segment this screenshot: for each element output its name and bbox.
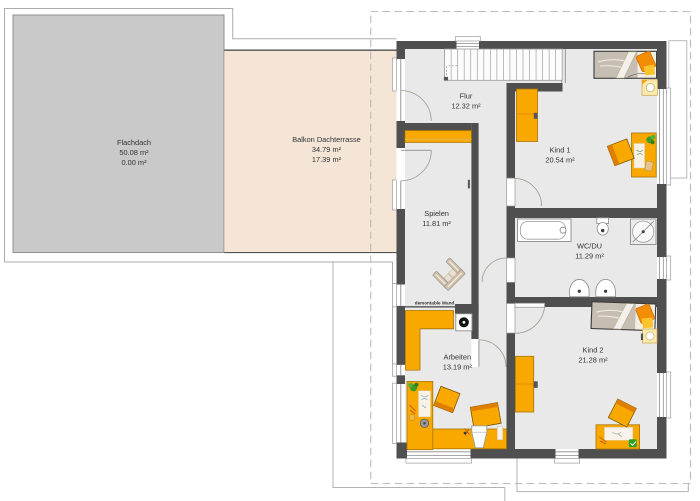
svg-text:Flachdach: Flachdach xyxy=(117,138,151,147)
svg-text:21.28 m²: 21.28 m² xyxy=(578,356,608,365)
svg-text:13.19 m²: 13.19 m² xyxy=(443,363,473,372)
svg-text:Arbeiten: Arbeiten xyxy=(444,353,472,362)
svg-text:20.54 m²: 20.54 m² xyxy=(545,156,575,165)
svg-text:Flur: Flur xyxy=(460,92,473,101)
svg-text:12.32 m²: 12.32 m² xyxy=(451,102,481,111)
svg-text:Spielen: Spielen xyxy=(424,209,449,218)
svg-text:34.79 m²: 34.79 m² xyxy=(312,145,342,154)
svg-text:Kind 1: Kind 1 xyxy=(550,146,571,155)
svg-text:demontable Wand: demontable Wand xyxy=(415,300,455,305)
svg-text:50.08 m²: 50.08 m² xyxy=(119,148,149,157)
svg-text:11.29 m²: 11.29 m² xyxy=(575,252,604,261)
svg-text:11.81 m²: 11.81 m² xyxy=(422,219,451,228)
svg-text:Kind 2: Kind 2 xyxy=(583,346,604,355)
svg-text:0.00 m²: 0.00 m² xyxy=(121,158,147,167)
svg-text:WC/DU: WC/DU xyxy=(577,242,602,251)
svg-text:17.39 m²: 17.39 m² xyxy=(312,155,342,164)
svg-text:Balkon Dachterrasse: Balkon Dachterrasse xyxy=(292,135,361,144)
